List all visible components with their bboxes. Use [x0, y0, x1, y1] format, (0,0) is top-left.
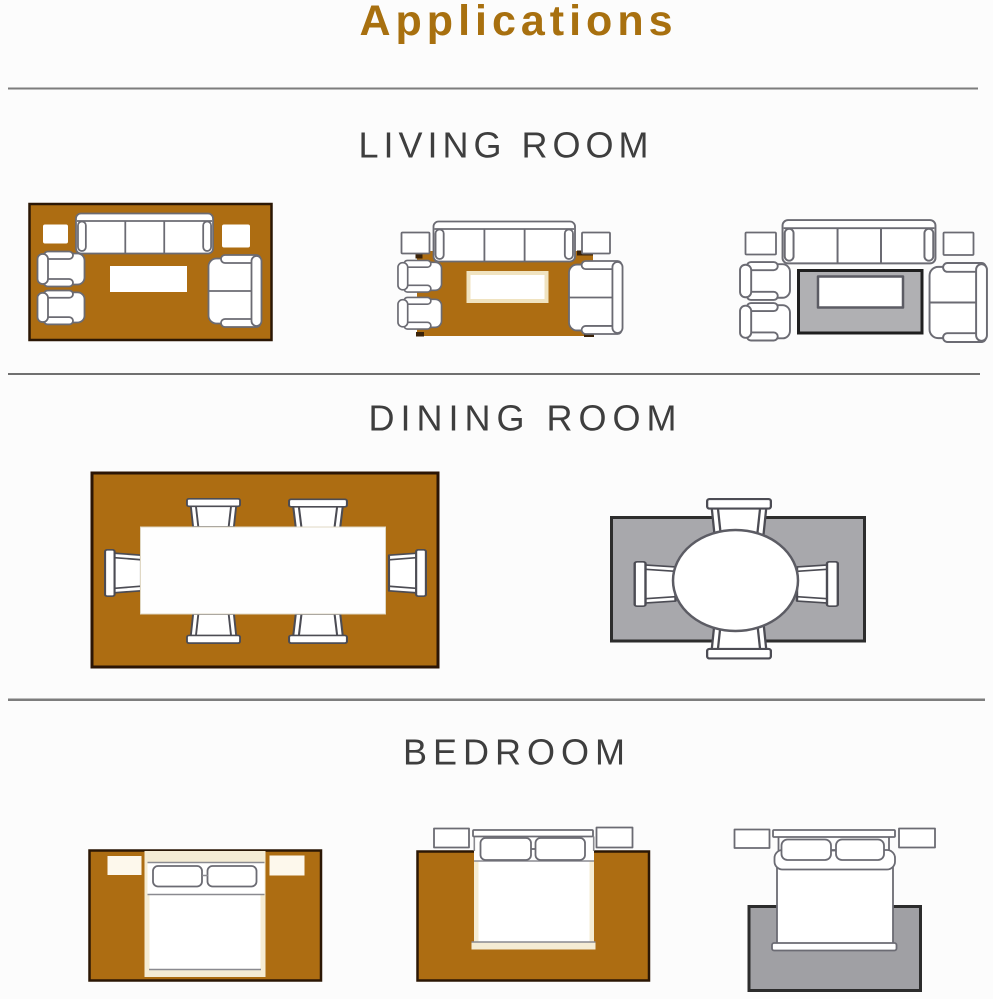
svg-text:Applications: Applications: [359, 0, 677, 45]
svg-text:BEDROOM: BEDROOM: [403, 732, 631, 773]
svg-text:LIVING ROOM: LIVING ROOM: [358, 125, 653, 166]
svg-text:DINING ROOM: DINING ROOM: [369, 398, 683, 439]
